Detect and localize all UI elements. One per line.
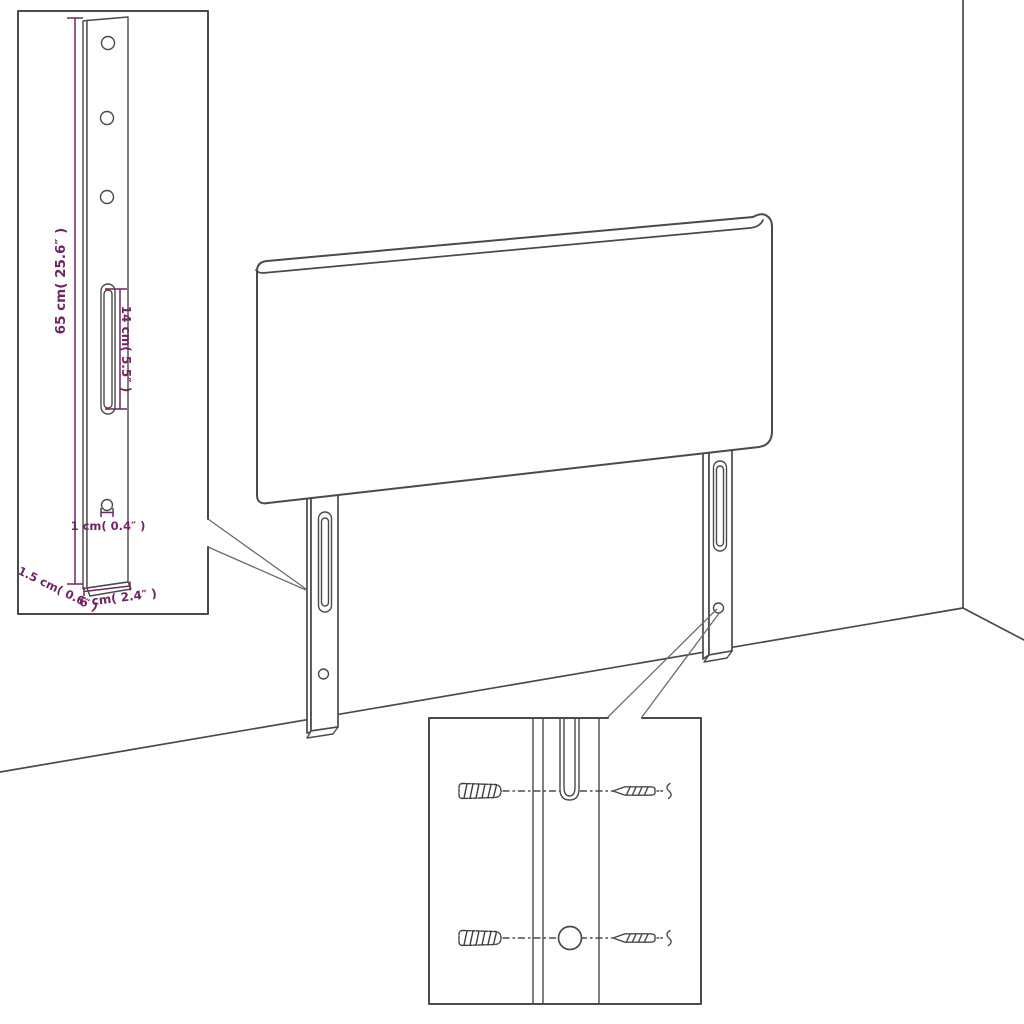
bracket-inset-callout-lines [208, 519, 306, 590]
headboard-leg-right [703, 433, 732, 662]
dimension-label-bracket-height: 65 cm( 25.6″ ) [53, 228, 69, 335]
mounting-slot [319, 512, 332, 612]
bracket-hole [102, 500, 113, 511]
bracket-hole [102, 37, 115, 50]
screw-hole [319, 669, 329, 679]
headboard-leg-left [307, 485, 338, 738]
mounting-slot [714, 461, 727, 551]
dimension-label-slot-length: 14 cm( 5.5″ ) [119, 306, 133, 392]
headboard-panel [256, 214, 772, 503]
bracket-slot [101, 284, 115, 414]
leg-side-face [703, 435, 709, 659]
headboard-panel-outline [257, 214, 772, 503]
headboard-assembly-diagram: 65 cm( 25.6″ ) 14 cm( 5.5″ ) 1 cm( 0.4″ … [0, 0, 1024, 1024]
screw-hole [559, 927, 582, 950]
diagram-artwork [0, 0, 1024, 1024]
bracket-hole [101, 191, 114, 204]
bracket-hole [101, 112, 114, 125]
dimension-label-hole-diameter: 1 cm( 0.4″ ) [71, 519, 146, 533]
